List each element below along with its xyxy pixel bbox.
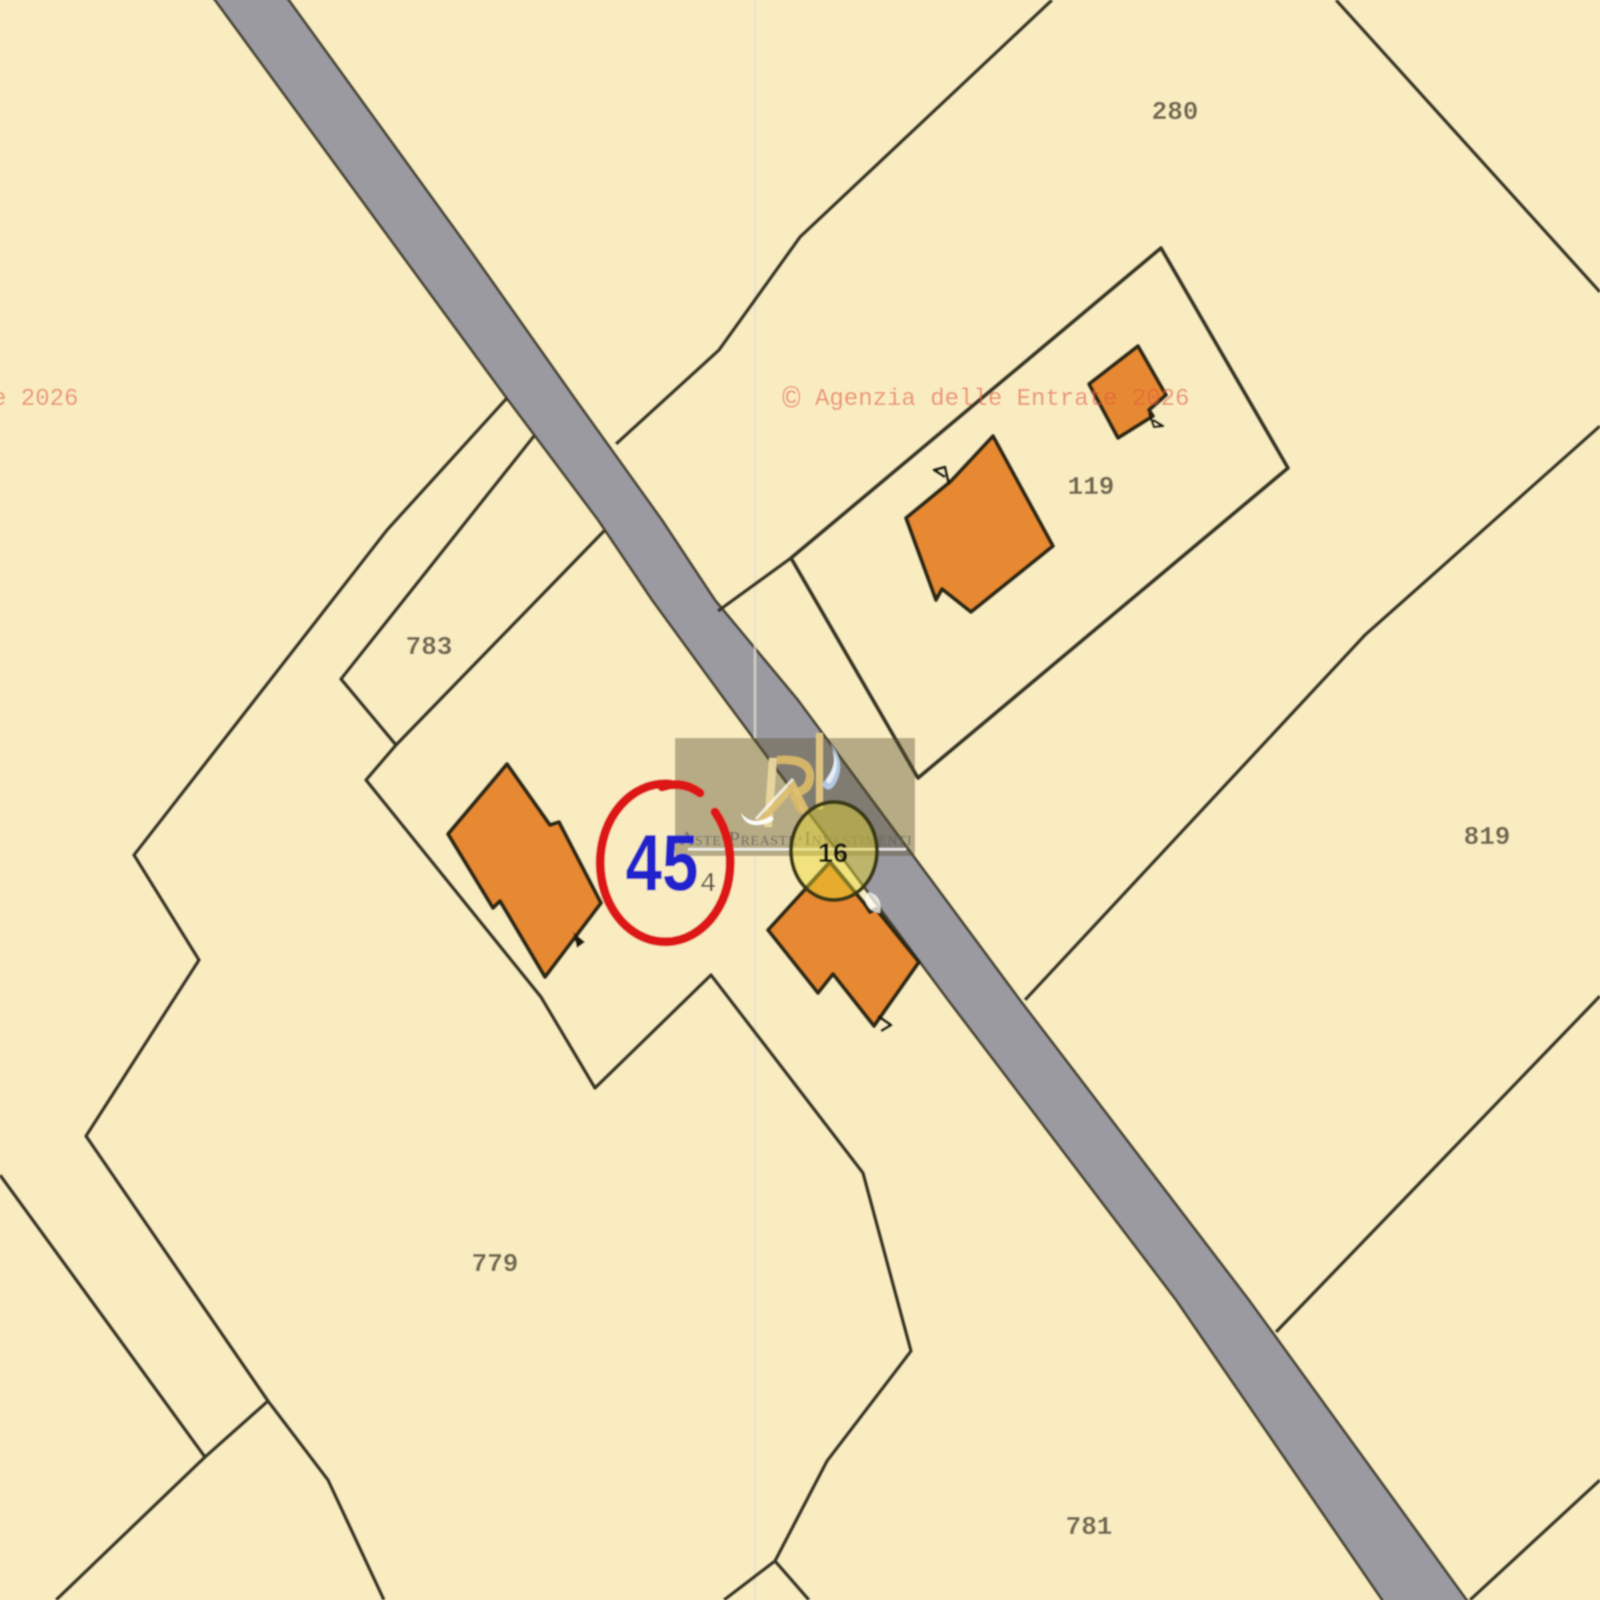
svg-text:781: 781 xyxy=(1066,1512,1113,1542)
svg-text:Agenzia delle Entrate 2026: Agenzia delle Entrate 2026 xyxy=(815,386,1189,413)
svg-text:819: 819 xyxy=(1464,822,1511,852)
svg-text:16: 16 xyxy=(818,838,848,868)
svg-text:4: 4 xyxy=(700,870,716,900)
svg-text:779: 779 xyxy=(472,1249,519,1279)
svg-text:©: © xyxy=(782,383,801,418)
svg-text:45: 45 xyxy=(626,818,699,908)
svg-text:e 2026: e 2026 xyxy=(0,386,78,413)
svg-text:119: 119 xyxy=(1068,472,1115,502)
svg-text:783: 783 xyxy=(406,632,453,662)
svg-text:280: 280 xyxy=(1152,97,1199,127)
